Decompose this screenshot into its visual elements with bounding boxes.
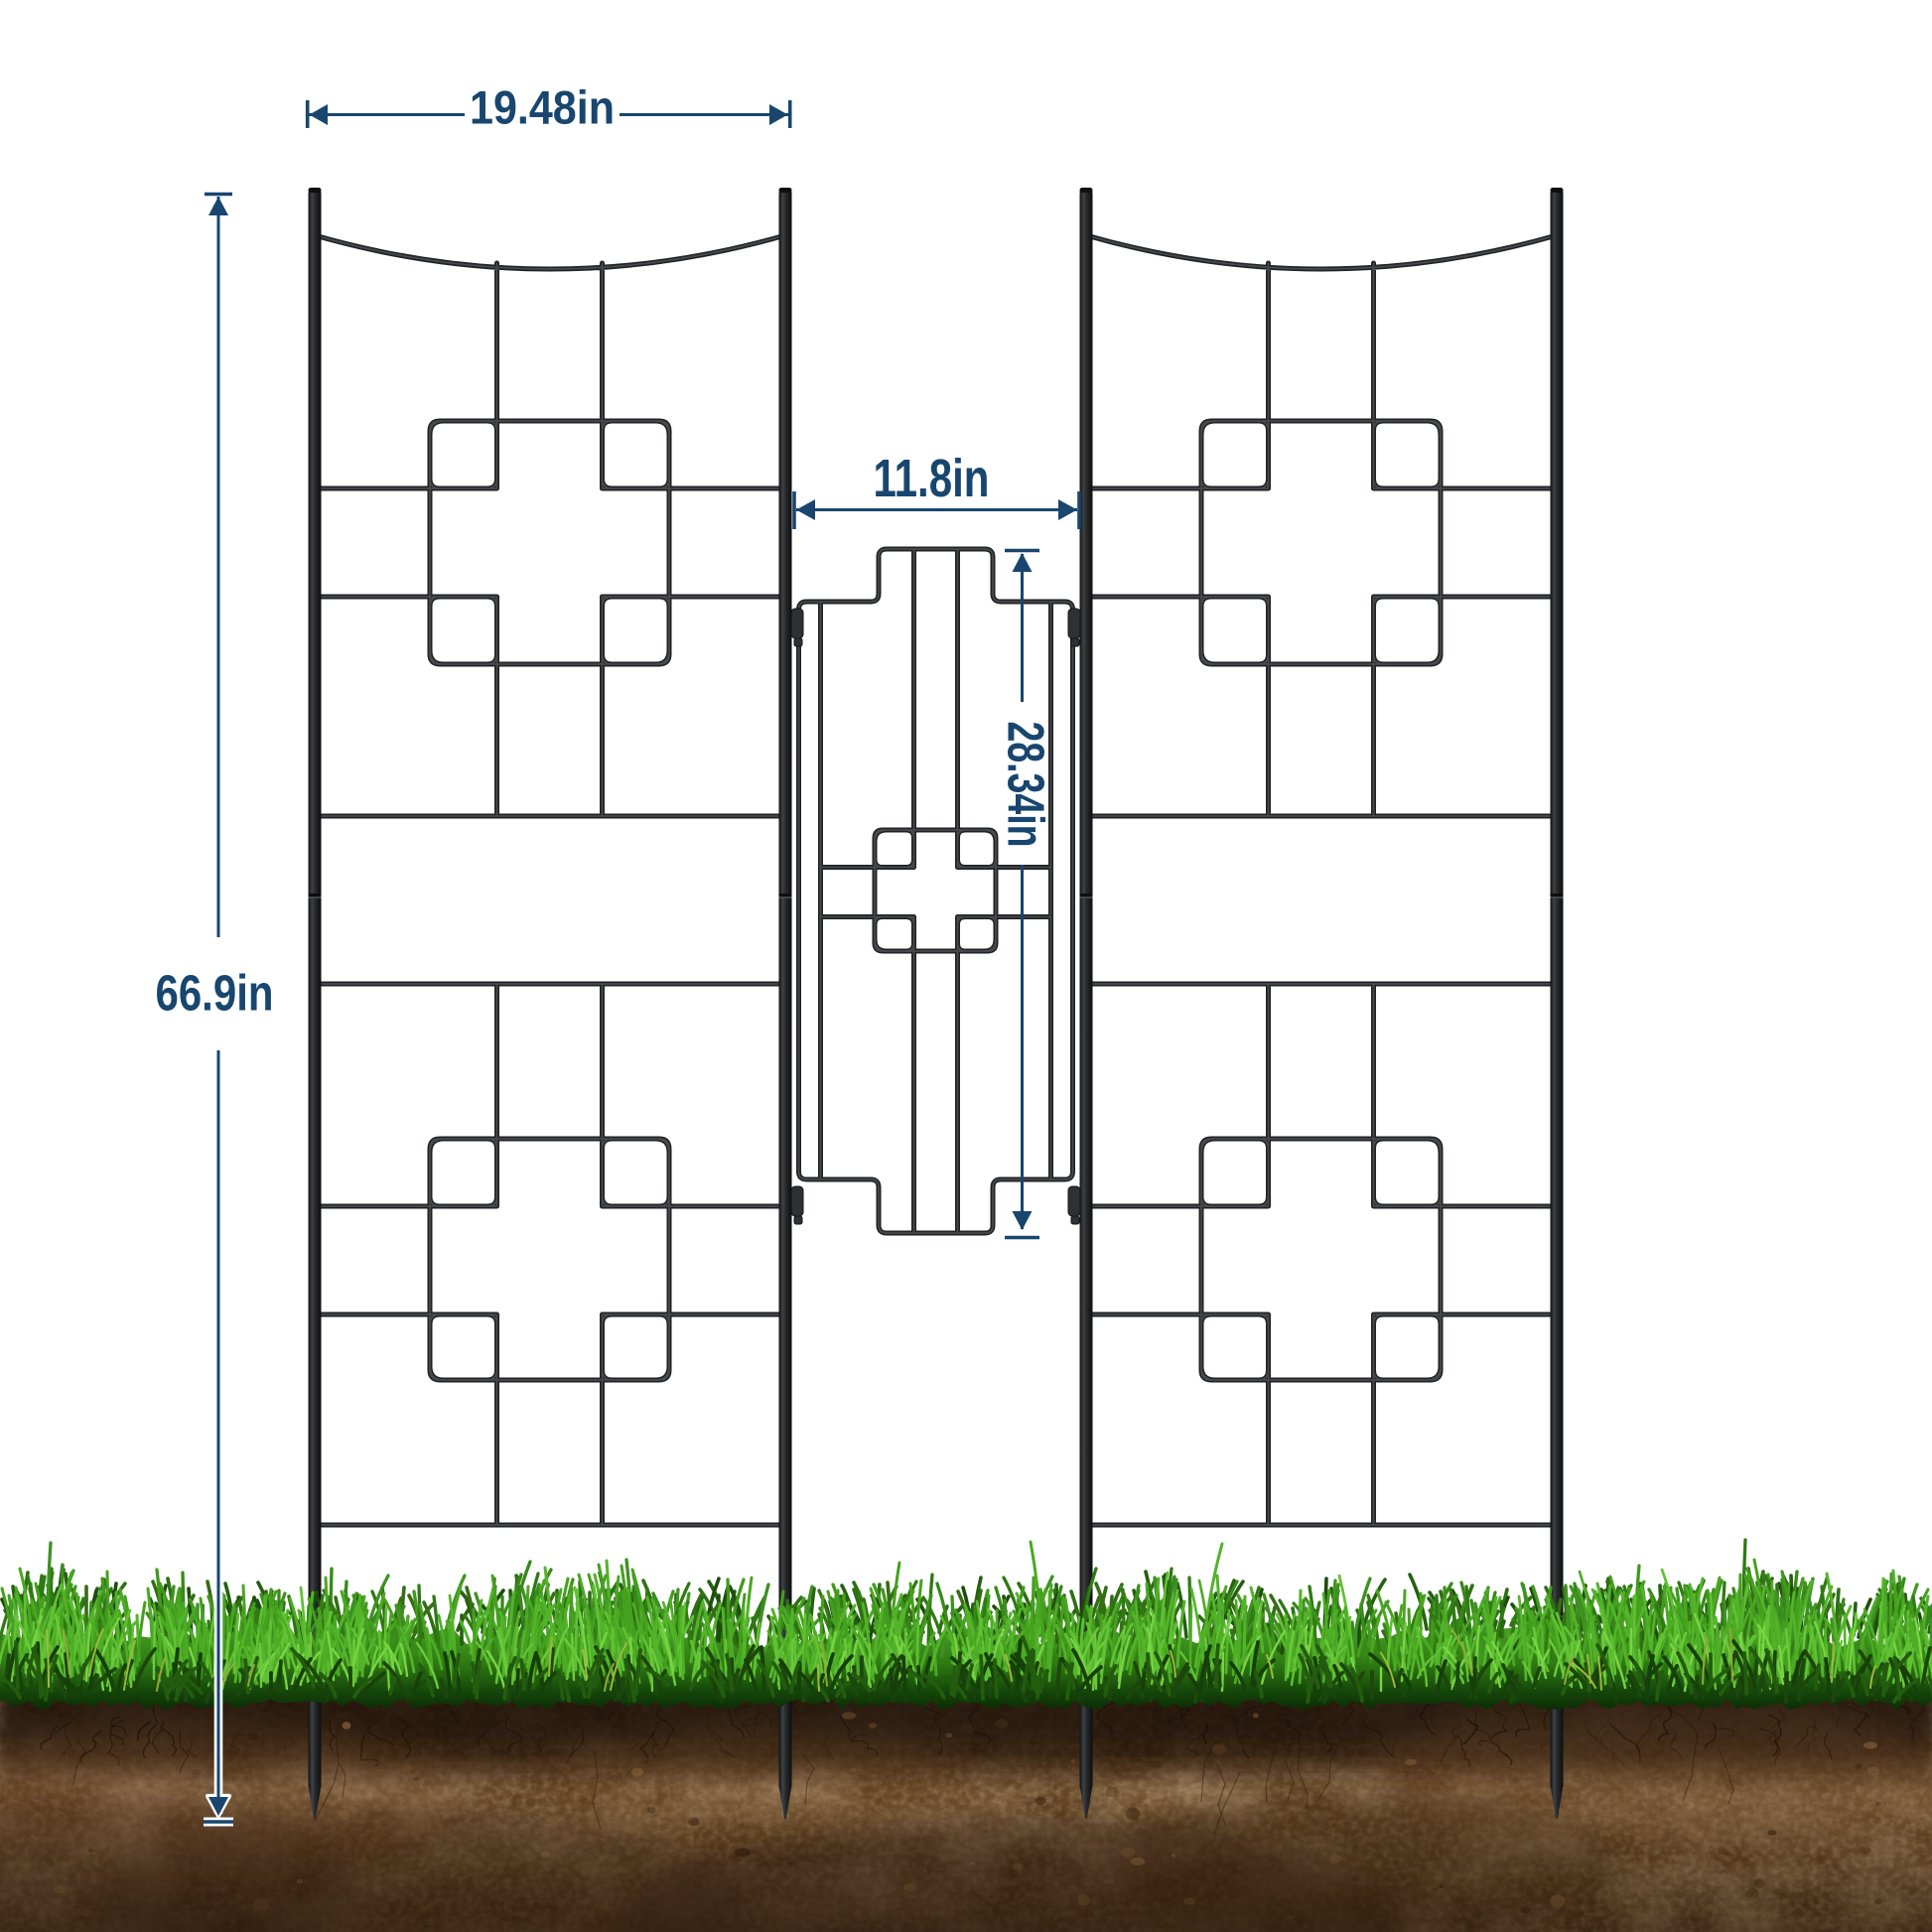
svg-text:19.48in: 19.48in <box>470 81 615 134</box>
svg-text:28.34in: 28.34in <box>997 722 1054 848</box>
svg-text:11.8in: 11.8in <box>874 449 990 508</box>
svg-text:66.9in: 66.9in <box>156 965 274 1022</box>
